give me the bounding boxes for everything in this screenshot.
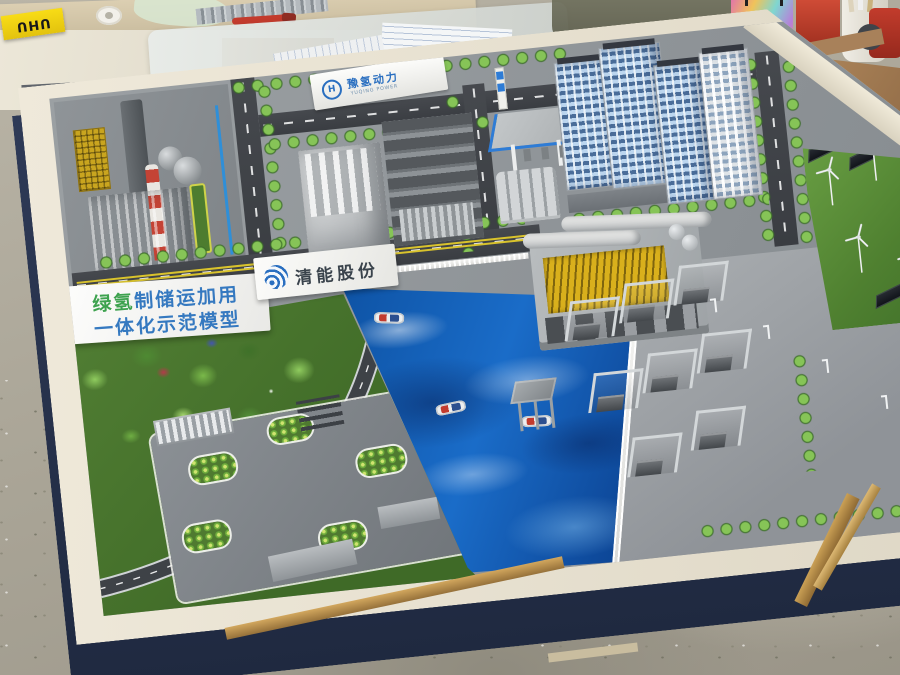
gate-logo-icon: H <box>321 78 344 101</box>
compressor-unit <box>650 375 678 393</box>
gantry-frame <box>691 406 746 451</box>
boat-cargo <box>379 314 399 322</box>
compressor-unit <box>635 459 663 477</box>
compressor-unit <box>705 355 733 373</box>
wind-turbine <box>839 221 880 276</box>
company-name: 清能股份 <box>294 255 380 289</box>
workshop-scene: UHU <box>0 0 900 675</box>
gantry-frame <box>673 261 728 306</box>
electrolyzer-equipment-rows <box>382 113 485 247</box>
spherical-tank <box>172 155 203 186</box>
boat <box>435 400 467 417</box>
water-platform <box>511 377 563 439</box>
sign-panel <box>497 83 505 92</box>
yellow-lattice-tower <box>73 127 111 192</box>
fuel-dispenser <box>523 149 531 162</box>
boat-cargo <box>440 403 461 414</box>
low-building <box>377 497 440 529</box>
planter-island <box>356 444 408 478</box>
company-logo-icon <box>263 264 289 290</box>
platform-leg <box>518 401 524 431</box>
compressor-unit <box>596 394 624 412</box>
model-surface: 绿氢制储运加用 一体化示范模型 清能股份 H 豫氢动力 YUQING POWER <box>49 7 900 616</box>
gantry-frame <box>565 296 620 341</box>
boat <box>374 312 404 324</box>
gantry-frame <box>588 368 643 413</box>
white-rod <box>858 0 863 10</box>
platform-leg <box>549 398 555 428</box>
planter-island <box>182 520 232 554</box>
tape-roll <box>96 6 122 25</box>
compressor-unit <box>573 322 601 340</box>
wind-turbine <box>810 154 851 209</box>
model-table: 绿氢制储运加用 一体化示范模型 清能股份 H 豫氢动力 YUQING POWER <box>18 0 900 645</box>
gantry-frame <box>619 278 674 323</box>
compressor-unit <box>627 305 655 323</box>
gantry-frame <box>627 432 682 477</box>
sign-panel <box>496 71 504 80</box>
blue-pipeline <box>215 105 234 254</box>
wind-turbine <box>897 159 900 214</box>
compressor-unit <box>699 432 727 450</box>
platform-leg <box>533 400 539 430</box>
gantry-frame <box>697 329 752 374</box>
compressor-unit <box>681 287 709 305</box>
wind-turbine <box>853 129 894 184</box>
gantry-frame <box>642 348 697 393</box>
planter-island <box>188 451 238 485</box>
rack-structure <box>296 394 345 431</box>
fuel-dispenser <box>541 147 549 160</box>
